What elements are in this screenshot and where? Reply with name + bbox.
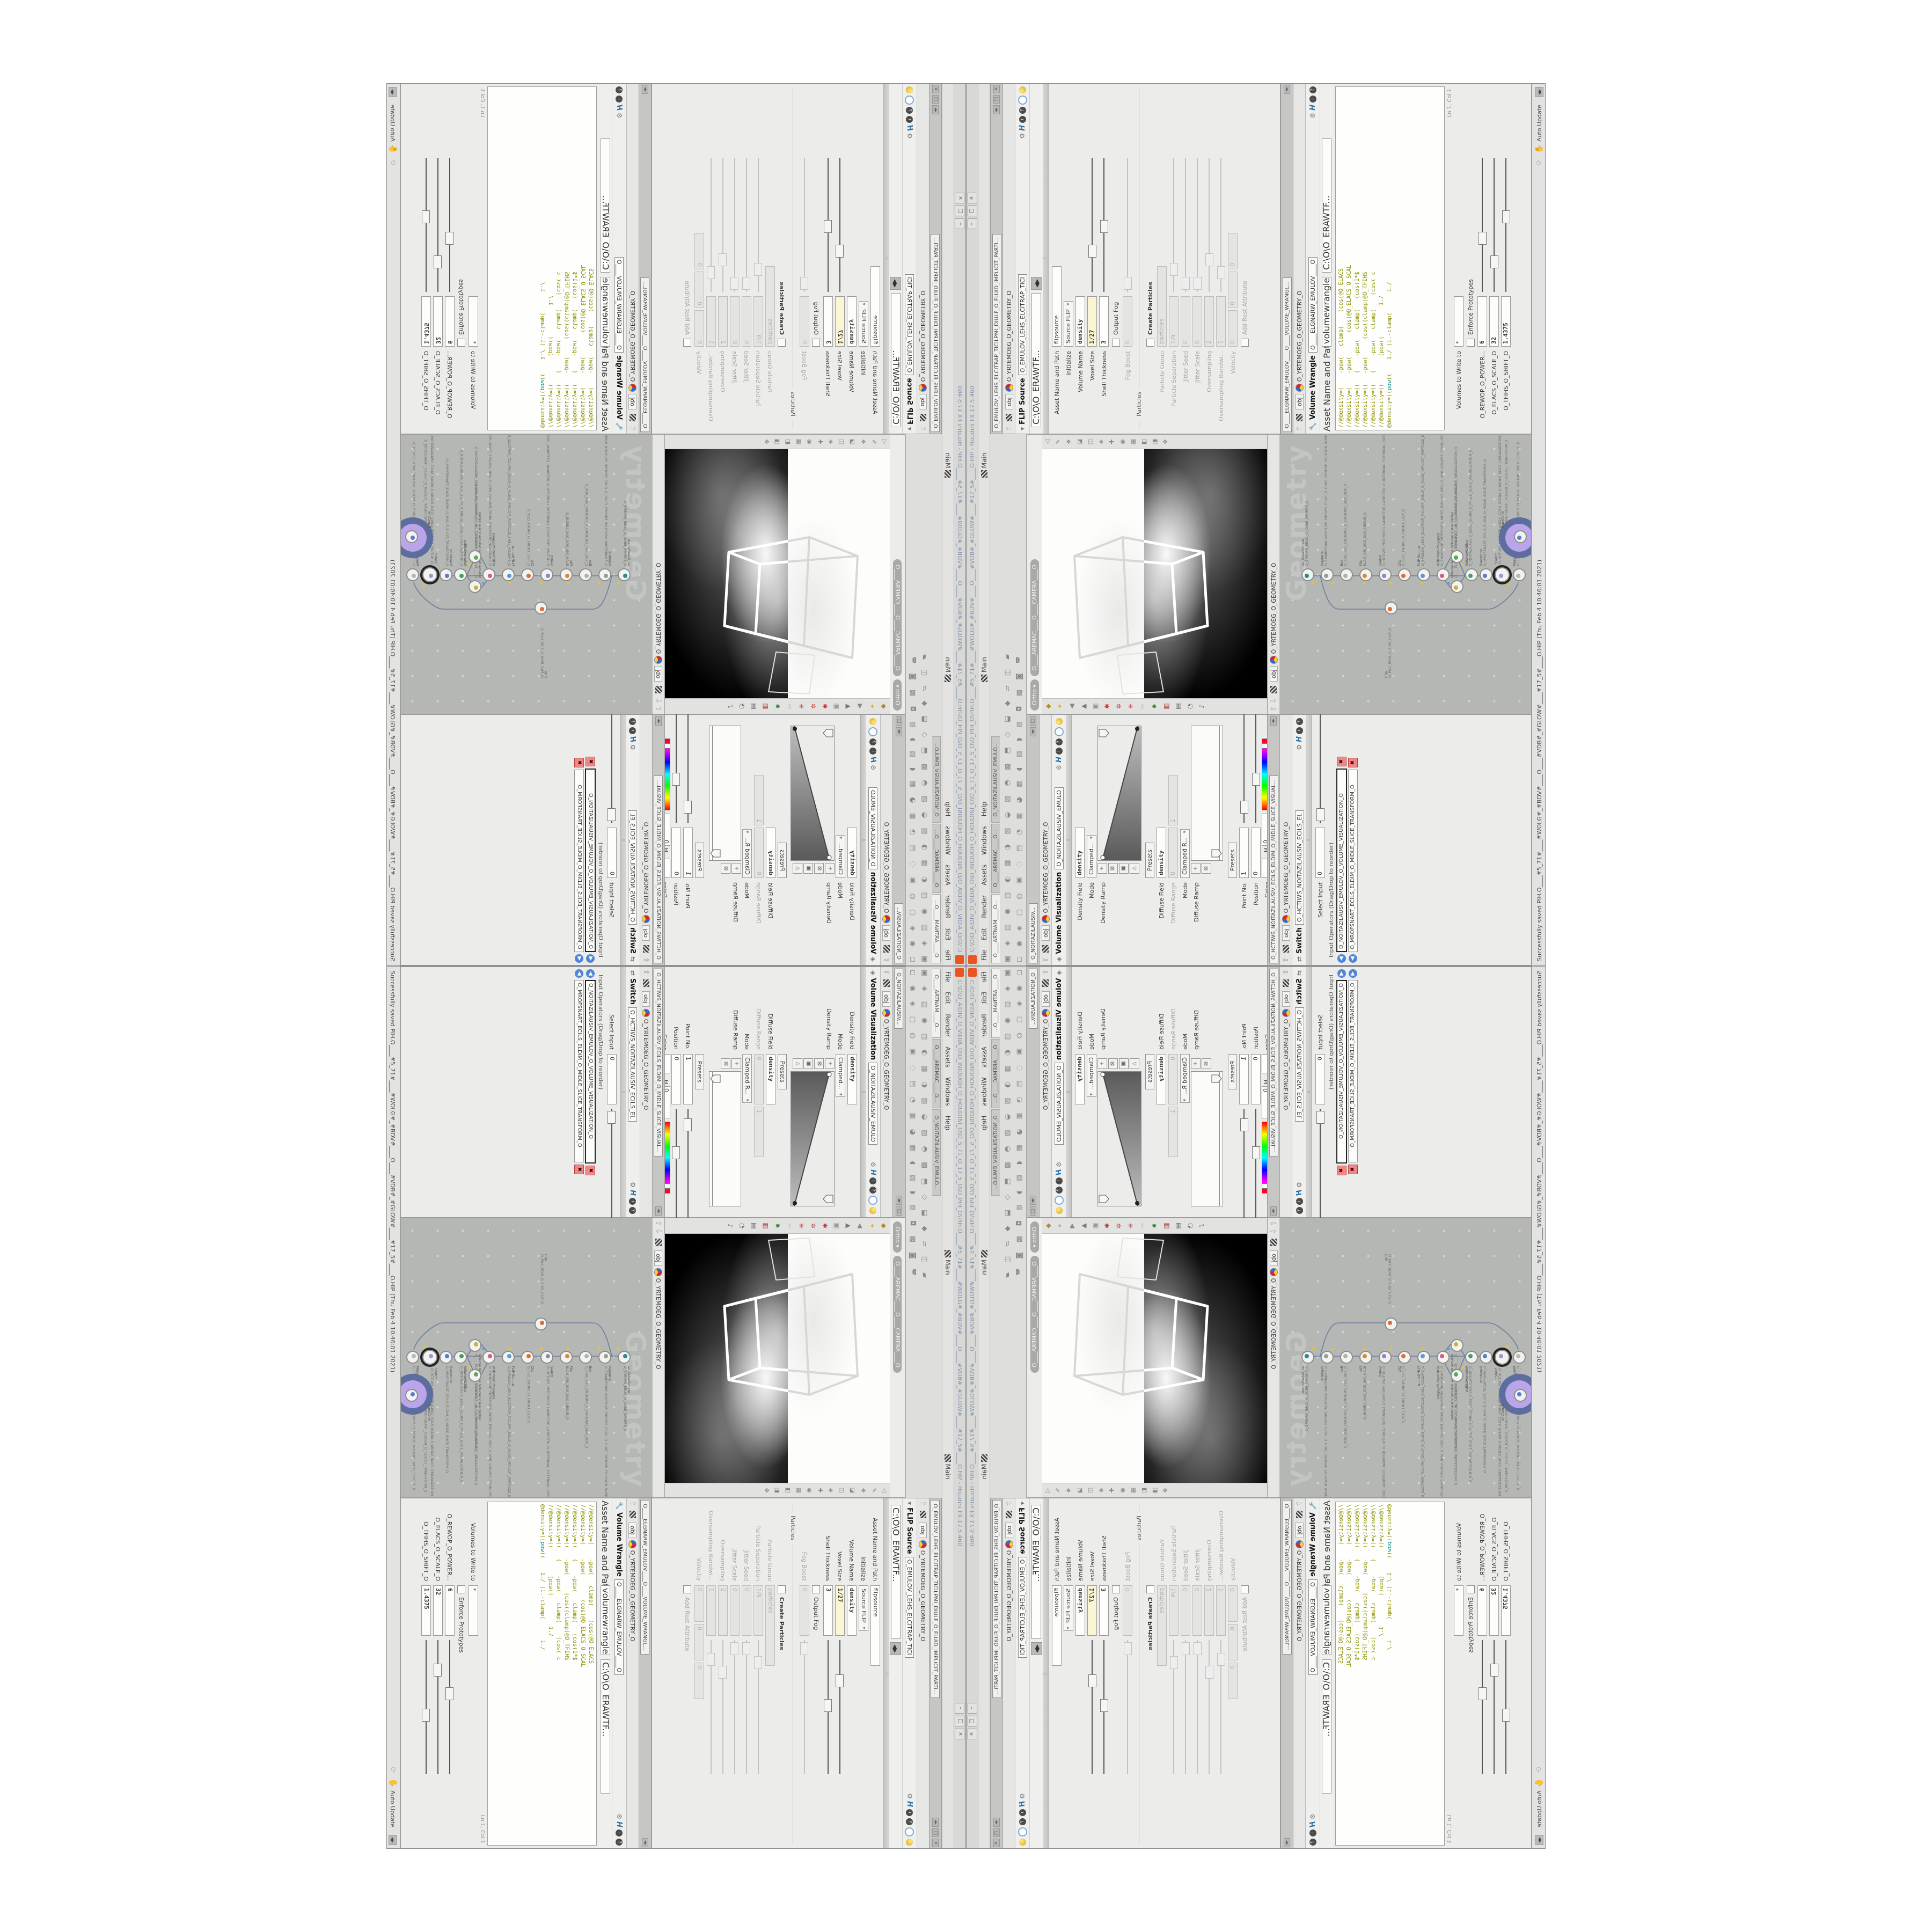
node-flip-source[interactable]: FLIP SourceO_EMULOV_LEHS_ELCITRAP_TICILP… [1417, 568, 1430, 581]
menu-help[interactable]: Help [945, 797, 952, 821]
ramp-del-icon[interactable]: ⊠ [814, 1058, 824, 1069]
gear-icon[interactable]: ⚙ [1296, 1182, 1303, 1188]
node-volume-visualization[interactable]: Volume VisualizationO_NOITAZILAUSIV_EMUL… [469, 550, 481, 563]
fog-boost-field[interactable]: 0 [800, 296, 809, 347]
jitter-scale-field[interactable]: 0 [1192, 1585, 1202, 1636]
shelf-tab-mantra[interactable]: O____ARTNAM____O... [991, 969, 1000, 1038]
nav-up-icon[interactable]: ⇧ [655, 706, 663, 712]
pane-max-icon[interactable]: □ [993, 95, 1000, 104]
asset-path-field[interactable]: C:\O\O_ERAWTF... [1322, 138, 1331, 273]
asset-path-field[interactable]: C:\O\O_ERAWTF... [1322, 1659, 1331, 1794]
power-slider[interactable] [1479, 1640, 1486, 1774]
pane-split-icon[interactable]: ◂▸ [642, 1838, 648, 1847]
update-mode-selector[interactable]: Auto Update [1536, 105, 1543, 142]
point-no-input[interactable]: 1 [1239, 1054, 1249, 1104]
gear-icon[interactable]: ⚙ [1309, 1813, 1316, 1819]
shell-thickness-slider[interactable] [824, 1640, 832, 1774]
path-arrows-icon[interactable]: ◂▸ [1031, 277, 1042, 290]
shelf-tools-row2[interactable]: ◻ ◉ ◈ ▢ ◍ ▣ ◌ ▤ ◔ ▥ ◕ ▦ ◖ ▧ ◗ ▨ ◘ ▩ ◙ ◚ [907, 970, 918, 1431]
scale-slider[interactable] [434, 158, 442, 292]
vex-code-editor[interactable]: //@density=( -pow( clamp( (cos(@O_ELACS_… [1335, 1502, 1445, 1846]
ramp-add-icon[interactable]: + [1097, 1058, 1107, 1069]
oversampling-bw-field[interactable]: 1 [1216, 1585, 1226, 1636]
fog-boost-slider[interactable] [1124, 1640, 1131, 1774]
density-presets-button[interactable]: Presets [778, 843, 787, 878]
viewport-right-toolbar[interactable]: ◁✎❖◪◫◈ ✚◉▦◧◨✥ [1042, 1483, 1267, 1497]
particle-separation-slider[interactable] [755, 158, 762, 292]
close-button[interactable]: × [955, 1729, 964, 1739]
pane-split-icon[interactable]: ◂▸ [1030, 1196, 1036, 1205]
remove-icon[interactable]: ✖ [574, 758, 584, 767]
particle-group-field[interactable]: particles [765, 1585, 775, 1666]
pane-tab[interactable]: O____ELGNARW_EMULOV____O____VOLUME_WRANG… [1283, 1500, 1292, 1655]
voxel-size-field[interactable]: 1/27 [1087, 296, 1097, 347]
flipsource-name-field[interactable]: flipsource [870, 266, 880, 347]
pane-tab[interactable]: O_EMULOV_LEHS_ELCITRAP_TICILPMI_DIULF_O_… [931, 234, 940, 432]
flipsource-name-field[interactable]: flipsource [1052, 1585, 1062, 1666]
question-icon[interactable]: ? [616, 1839, 623, 1846]
vex-code-editor[interactable]: //@density=( -pow( clamp( (cos(@O_ELACS_… [487, 86, 597, 430]
pane-tab[interactable]: O_HCTIWS_NOITAZILAUSIV_ECILS_ELDIM_O_MID… [654, 775, 663, 963]
param-scroll-strip[interactable]: ⠿ [883, 1498, 889, 1849]
shift-field[interactable]: 1.4375 [1501, 296, 1511, 347]
mode-dropdown[interactable]: Clamped... [836, 1054, 845, 1097]
ramp-add-icon[interactable]: + [825, 1058, 835, 1069]
pane-tab[interactable]: O____ELGNARW_EMULOV____O____VOLUME_WRANG… [641, 277, 650, 432]
input-op-0[interactable]: O_NOITAZILAUSIV_EMULOV_O_VOLUME_VISUALIZ… [585, 769, 596, 952]
context-tab[interactable]: obj [1005, 1523, 1013, 1538]
add-rest-attribute-checkbox[interactable] [684, 1585, 692, 1593]
shelf-tools-row2[interactable]: ◻ ◉ ◈ ▢ ◍ ▣ ◌ ▤ ◔ ▥ ◕ ▦ ◖ ▧ ◗ ▨ ◘ ▩ ◙ ◚ [907, 501, 918, 962]
velocity-x[interactable]: 0 [694, 1585, 704, 1622]
node-merge[interactable]: MergeO_EGREM_HTIW_EMULOV_EGREM_O_MERGE_V… [406, 1351, 419, 1364]
node-name-field[interactable]: O_EMULOV_LEHS_ELCITRAP_TICI [1018, 1557, 1027, 1658]
pane-max-icon[interactable]: □ [896, 716, 902, 726]
volume-name-field[interactable]: density [847, 1585, 857, 1636]
flag-icon[interactable] [870, 718, 877, 725]
pane-split-icon[interactable]: ◂▸ [896, 727, 902, 736]
path-geometry[interactable]: O_YRTEMOEG_O_GEOMETRY_O [1270, 1278, 1277, 1370]
viewport-right-toolbar[interactable]: ◁✎❖◪◫◈ ✚◉▦◧◨✥ [665, 1483, 890, 1497]
jitter-seed-field[interactable]: 0 [1181, 1585, 1190, 1636]
node-clip-front[interactable]: ClipO_PILC_TNORF_O_FRONT_CLIP_O [521, 1351, 534, 1364]
shell-thickness-slider[interactable] [1100, 1640, 1108, 1774]
menu-windows[interactable]: Windows [945, 1072, 952, 1111]
oversampling-field[interactable]: 2 [1204, 296, 1214, 347]
menu-file[interactable]: File [945, 967, 952, 987]
status-arrows-icon[interactable]: ◂▸ [1535, 1835, 1543, 1845]
pane-tab[interactable]: O____ELGNARW_EMULOV____O____VOLUME_WRANG… [641, 1500, 650, 1655]
path-geometry[interactable]: O_YRTEMOEG_O_GEOMETRY_O [1042, 822, 1049, 913]
menu-edit[interactable]: Edit [980, 987, 988, 1009]
node-vdb-from-polygons[interactable]: VDB from PolygonsO_SNOGYLOP_YRTEMOEG_MOR… [482, 1351, 495, 1364]
node-cubesphere[interactable]: ao_CubeSphereO_EREHPS_EBUC_O_CUBE_SPHERE… [618, 568, 631, 581]
volumes-to-write-field[interactable]: * [469, 1585, 478, 1636]
power-field[interactable]: 6 [445, 1585, 455, 1636]
path-geometry[interactable]: O_YRTEMOEG_O_GEOMETRY_O [630, 291, 636, 382]
gear-icon[interactable]: ⚙ [1055, 1161, 1063, 1167]
ramp-add-icon[interactable]: + [731, 863, 741, 874]
maximize-button[interactable]: □ [968, 1716, 977, 1726]
asset-path-field[interactable]: C:\O\O_ERAWTF... [601, 1659, 610, 1794]
status-arrows-icon[interactable]: ◂▸ [389, 87, 397, 97]
desktop-selector[interactable]: Main [945, 657, 952, 672]
mode-dropdown[interactable]: Clamped... [1087, 835, 1096, 878]
help-houdini-icon[interactable]: H [1296, 1190, 1304, 1196]
node-vdb-from-polygons[interactable]: VDB from PolygonsO_SNOGYLOP_YRTEMOEG_MOR… [482, 568, 495, 581]
particle-separation-field[interactable]: 1/9 [753, 1585, 763, 1636]
asset-path-field[interactable]: C:\O\O_ERAWTF... [891, 1505, 901, 1639]
path-geometry[interactable]: O_YRTEMOEG_O_GEOMETRY_O [1006, 291, 1013, 382]
target-icon[interactable] [1018, 1827, 1027, 1836]
shelf-tools-row1[interactable]: ▣ ◈ ▤ ◉ ▥ ◐ ▦ ◑ ▧ ◒ ▨ ◓ ▩ ⬒ ◇ ⬓ ◆ ▱ ◫ ▰ [1002, 970, 1013, 1431]
close-button[interactable]: × [968, 1729, 977, 1739]
node-file[interactable]: FileBLAH_OBJ_SOS_NAO_UBSUB_O [560, 568, 573, 581]
jitter-scale-slider[interactable] [731, 1640, 738, 1774]
jitter-scale-field[interactable]: 0 [730, 1585, 740, 1636]
ramp-tri-icon[interactable]: △ [793, 863, 802, 874]
path-arrows-icon[interactable]: ◂▸ [1031, 1642, 1042, 1655]
param-scroll-strip[interactable]: ⠿ [1066, 967, 1072, 1217]
node-file[interactable]: FileBLAH_OBJ_SOS_NAO_UBSUB_O [1359, 1351, 1372, 1364]
reorder-handle-icon[interactable]: ◀ [1337, 969, 1346, 978]
diffuse-mode-dropdown[interactable]: Clamped R... [1180, 829, 1190, 878]
voxel-size-field[interactable]: 1/27 [1087, 1585, 1097, 1636]
flag-icon[interactable] [1019, 86, 1026, 93]
viewport-right-toolbar[interactable]: ◁✎❖◪◫◈ ✚◉▦◧◨✥ [665, 435, 890, 449]
node-merge[interactable]: MergeO_EGREM_HTIW_EMULOV_EGREM_O_MERGE_V… [1513, 568, 1526, 581]
nav-up-icon[interactable]: ⇧ [1296, 426, 1304, 431]
oversampling-bw-field[interactable]: 1 [706, 296, 716, 347]
pane-max-icon[interactable]: □ [1030, 716, 1036, 726]
ramp-add-icon[interactable]: + [825, 863, 835, 874]
node-file[interactable]: FileBLAH_OBJ_SOS_NAO_UBSUB_O [1359, 568, 1372, 581]
projection-toggle[interactable]: Ortho ▾ [1030, 679, 1039, 711]
diffuse-presets-button[interactable]: Presets [1228, 843, 1237, 878]
enforce-prototypes-checkbox[interactable] [1467, 339, 1475, 347]
add-rest-attribute-checkbox[interactable] [1241, 1585, 1249, 1593]
nav-up-icon[interactable]: ⇧ [1282, 969, 1290, 975]
node-name-field[interactable]: O_EMULOV_LEHS_ELCITRAP_TICI [1018, 274, 1027, 375]
info-icon[interactable]: i [616, 96, 623, 103]
scale-slider[interactable] [1490, 1640, 1498, 1774]
enforce-prototypes-checkbox[interactable] [458, 339, 466, 347]
desktop-selector[interactable]: Main [980, 657, 988, 672]
camera-selector[interactable]: O____AREMAC____O____CAMERA____O [1030, 1256, 1039, 1373]
particle-separation-slider[interactable] [1170, 158, 1177, 292]
wrangle-name-field[interactable]: volumewrangle [601, 277, 610, 347]
node-polywire[interactable]: PolyWireO_EMARFERIW_NOGYLOP_EREHPS_EBUC_… [1321, 568, 1334, 581]
nav-up-icon[interactable]: ⇧ [1042, 969, 1050, 975]
help-houdini-icon[interactable]: H [1019, 125, 1027, 131]
path-geometry[interactable]: O_YRTEMOEG_O_GEOMETRY_O [1283, 822, 1290, 913]
mode-dropdown[interactable]: Clamped... [1087, 1054, 1096, 1097]
info-icon[interactable]: i [1056, 1177, 1063, 1184]
pane-max-icon[interactable]: □ [1030, 1206, 1036, 1216]
scale-slider[interactable] [1490, 158, 1498, 292]
help-houdini-icon[interactable]: H [1309, 105, 1317, 111]
input-op-1[interactable]: O_MROFSNART_ECILS_ELDIM_O_MIDLE_SLICE_TR… [1348, 980, 1358, 1162]
question-icon[interactable]: ? [1309, 86, 1316, 93]
ramp-opt-icon[interactable]: ▣ [1119, 1058, 1129, 1069]
info-icon[interactable]: i [616, 1829, 623, 1836]
maximize-button[interactable]: □ [955, 206, 964, 216]
jitter-seed-field[interactable]: 0 [742, 296, 751, 347]
jitter-scale-field[interactable]: 0 [1192, 296, 1202, 347]
nav-up-icon[interactable]: ⇧ [642, 957, 650, 963]
shelf-tab-mantra[interactable]: O____ARTNAM____O... [932, 969, 941, 1038]
scale-field[interactable]: 32 [433, 296, 443, 347]
context-tab[interactable]: obj [1296, 1523, 1304, 1538]
pane-split-icon[interactable]: ◂▸ [1284, 85, 1290, 94]
menu-assets[interactable]: Assets [945, 1042, 952, 1072]
asset-path-field[interactable]: C:\O\O_ERAWTF... [1031, 293, 1041, 427]
param-scroll-strip[interactable]: ⠿ [883, 83, 889, 434]
help-houdini-icon[interactable]: H [616, 105, 624, 111]
shelf-tab-visualization[interactable]: O_NOITAZILAUSIV_EMULO... [991, 1109, 1000, 1196]
question-icon[interactable]: ? [616, 86, 623, 93]
jitter-scale-slider[interactable] [1194, 158, 1201, 292]
help-houdini-icon[interactable]: H [869, 1169, 877, 1175]
shelf-tools-row1[interactable]: ▣ ◈ ▤ ◉ ▥ ◐ ▦ ◑ ▧ ◒ ▨ ◓ ▩ ⬒ ◇ ⬓ ◆ ▱ ◫ ▰ [1002, 501, 1013, 962]
context-tab[interactable]: obj [655, 1250, 663, 1266]
menu-assets[interactable]: Assets [980, 1042, 988, 1072]
input-op-0[interactable]: O_NOITAZILAUSIV_EMULOV_O_VOLUME_VISUALIZ… [585, 980, 596, 1163]
density-field-input[interactable]: density [1075, 828, 1085, 878]
projection-toggle[interactable]: Ortho ▾ [893, 679, 902, 711]
context-tab[interactable]: obj [629, 394, 637, 409]
context-tab[interactable]: obj [642, 925, 650, 941]
oversampling-bw-field[interactable]: 1 [1216, 296, 1226, 347]
gear-icon[interactable]: ⚙ [1019, 133, 1026, 139]
node-name-field[interactable]: O_EMULOV_LEHS_ELCITRAP_TICI [905, 1557, 914, 1658]
vex-code-editor[interactable]: //@density=( -pow( clamp( (cos(@O_ELACS_… [1335, 86, 1445, 430]
power-slider[interactable] [1479, 158, 1486, 292]
param-scroll-strip[interactable]: ⠿ [1043, 1498, 1049, 1849]
pane-tab[interactable]: O_NOITAZILAUSIV... [1029, 969, 1038, 1029]
context-tab[interactable]: obj [1042, 991, 1050, 1007]
hand-icon[interactable]: ✋ [1535, 144, 1543, 153]
viewport-render[interactable] [1042, 449, 1267, 698]
fog-boost-field[interactable]: 0 [800, 1585, 809, 1636]
node-volume-wrangle[interactable]: Volume WrangleO____ELGNARW_EMULOV____O__… [469, 1339, 481, 1352]
refresh-icon[interactable]: ⟳ [1535, 1767, 1543, 1773]
create-particles-checkbox[interactable] [778, 1585, 786, 1593]
menu-windows[interactable]: Windows [980, 1072, 988, 1111]
node-volume-viz-slice[interactable]: VolumeVizSliceO_NOITAZILAUSIV_ECILS_ELDI… [1465, 568, 1478, 581]
shelf-tab-camera[interactable]: O____AREMAC____O... [991, 1039, 1000, 1108]
question-icon[interactable]: ? [870, 738, 877, 745]
reorder-handle-icon[interactable]: ◀ [1349, 954, 1357, 963]
ramp-add-icon[interactable]: + [1191, 863, 1201, 874]
particle-separation-slider[interactable] [755, 1640, 762, 1774]
ramp-del-icon[interactable]: ⊠ [1108, 863, 1118, 874]
question-icon[interactable]: ? [1056, 738, 1063, 745]
density-presets-button[interactable]: Presets [1145, 1054, 1154, 1089]
pane-split-icon[interactable]: ◂▸ [932, 1818, 939, 1827]
pane-split-icon[interactable]: ◂▸ [896, 1196, 902, 1205]
nav-up-icon[interactable]: ⇧ [1005, 1501, 1013, 1506]
pane-tab[interactable]: O_NOITAZILAUSIV... [895, 969, 904, 1029]
node-transform-result[interactable]: TransformO_MROFSNART_TLUSER_O_RESULT_TRA… [405, 530, 418, 543]
oversampling-bw-slider[interactable] [707, 1640, 715, 1774]
close-button[interactable]: × [968, 193, 977, 203]
diffuse-range-min[interactable]: 0 [1168, 828, 1178, 878]
shelf-tools-row1[interactable]: ▣ ◈ ▤ ◉ ▥ ◐ ▦ ◑ ▧ ◒ ▨ ◓ ▩ ⬒ ◇ ⬓ ◆ ▱ ◫ ▰ [919, 970, 930, 1431]
oversampling-field[interactable]: 2 [718, 1585, 728, 1636]
update-mode-selector[interactable]: Auto Update [1536, 1790, 1543, 1827]
node-volume-visualization[interactable]: Volume VisualizationO_NOITAZILAUSIV_EMUL… [1451, 1369, 1463, 1382]
shift-field[interactable]: 1.4375 [1501, 1585, 1511, 1636]
oversampling-field[interactable]: 2 [1204, 1585, 1214, 1636]
hand-icon[interactable]: ✋ [1535, 1779, 1543, 1788]
nav-up-icon[interactable]: ⇧ [655, 1220, 663, 1226]
density-ramp-widget[interactable] [791, 726, 835, 861]
shelf-tab-visualization[interactable]: O_NOITAZILAUSIV_EMULO... [991, 736, 1000, 823]
select-input-field[interactable]: 0 [1315, 828, 1325, 878]
initialize-dropdown[interactable]: Source FLIP [859, 1585, 868, 1631]
refresh-icon[interactable]: ⟳ [389, 159, 397, 165]
shift-field[interactable]: 1.4375 [421, 1585, 431, 1636]
gear-icon[interactable]: ⚙ [616, 1813, 623, 1819]
context-tab[interactable]: obj [1005, 394, 1013, 409]
wrangle-name-field[interactable]: volumewrangle [1322, 277, 1331, 347]
camera-selector[interactable]: O____AREMAC____O____CAMERA____O [893, 559, 902, 676]
pane-tab[interactable]: O_NOITAZILAUSIV... [1029, 904, 1038, 964]
path-arrows-icon[interactable]: ◂▸ [890, 1642, 902, 1655]
node-merge[interactable]: MergeO_EGREM_HTIW_EMULOV_EGREM_O_MERGE_V… [1513, 1351, 1526, 1364]
ramp-add-icon[interactable]: + [731, 1058, 741, 1069]
vex-code-editor[interactable]: //@density=( -pow( clamp( (cos(@O_ELACS_… [487, 1502, 597, 1846]
ramp-del-icon[interactable]: ⊠ [721, 1058, 730, 1069]
position-input[interactable]: 0 [671, 1054, 681, 1104]
node-clip-front[interactable]: ClipO_PILC_TNORF_O_FRONT_CLIP_O [1398, 568, 1411, 581]
viewport-left-toolbar[interactable]: ◆✦◀ ▲▣✱ ✲✳✂ ✸▥▤ ◔♪ [665, 698, 890, 714]
particle-group-field[interactable]: particles [765, 266, 775, 347]
target-icon[interactable] [869, 727, 878, 736]
network-canvas[interactable]: Geometry ao_CubeSphereO_EREHPS_EBUC_O_CU… [1280, 1218, 1531, 1497]
power-field[interactable]: 6 [1477, 296, 1487, 347]
pane-tab[interactable]: O_EMULOV_LEHS_ELCITRAP_TICILPMI_DIULF_O_… [992, 234, 1001, 432]
node-transform-result[interactable]: TransformO_MROFSNART_TLUSER_O_RESULT_TRA… [1514, 1389, 1527, 1402]
remove-icon[interactable]: ✖ [586, 757, 595, 766]
asset-path-field[interactable]: C:\O\O_ERAWTF... [891, 293, 901, 427]
voxel-size-field[interactable]: 1/27 [835, 296, 845, 347]
update-mode-selector[interactable]: Auto Update [390, 105, 397, 142]
node-name-field[interactable]: O____ELGNARW_EMULOV____O [615, 257, 624, 353]
shell-thickness-field[interactable]: 3 [1099, 1585, 1109, 1636]
viewport-left-toolbar[interactable]: ◆✦◀ ▲▣✱ ✲✳✂ ✸▥▤ ◔♪ [1042, 1218, 1267, 1234]
node-cubesphere[interactable]: ao_CubeSphereO_EREHPS_EBUC_O_CUBE_SPHERE… [1301, 1351, 1314, 1364]
context-tab[interactable]: obj [1270, 666, 1278, 682]
pane-split-icon[interactable]: ◂▸ [993, 1818, 1000, 1827]
node-flip-source[interactable]: FLIP SourceO_EMULOV_LEHS_ELCITRAP_TICILP… [502, 1351, 515, 1364]
diffuse-ramp-widget[interactable] [1191, 726, 1223, 861]
nav-up-icon[interactable]: ⇧ [1270, 706, 1278, 712]
remove-icon[interactable]: ✖ [1348, 758, 1358, 767]
pane-tab[interactable]: O_HCTIWS_NOITAZILAUSIV_ECILS_ELDIM_O_MID… [1269, 775, 1278, 963]
velocity-y[interactable]: 0 [694, 272, 704, 308]
particle-group-field[interactable]: particles [1157, 266, 1167, 347]
pane-split-icon[interactable]: ◂▸ [1030, 727, 1036, 736]
pane-split-icon[interactable]: ◂▸ [642, 85, 648, 94]
projection-toggle[interactable]: Ortho ▾ [893, 1221, 902, 1253]
param-scroll-strip[interactable]: ⠿ [1307, 967, 1312, 1217]
node-clip-front[interactable]: ClipO_PILC_TNORF_O_FRONT_CLIP_O [521, 568, 534, 581]
node-volume-viz-slice[interactable]: VolumeVizSliceO_NOITAZILAUSIV_ECILS_ELDI… [454, 1351, 467, 1364]
info-icon[interactable]: i [1309, 96, 1316, 103]
desktop-selector[interactable]: Main [945, 1260, 952, 1275]
node-clip-front[interactable]: ClipO_PILC_TNORF_O_FRONT_CLIP_O [1398, 1351, 1411, 1364]
node-name-field[interactable]: O____ELGNARW_EMULOV____O [615, 1579, 624, 1675]
gear-icon[interactable]: ⚙ [906, 133, 913, 139]
node-volume-wrangle[interactable]: Volume WrangleO____ELGNARW_EMULOV____O__… [1451, 1339, 1463, 1352]
pane-split-icon[interactable]: ◂▸ [1284, 1838, 1290, 1847]
node-clip-side[interactable]: ClipO_PILC_EDIS_O_SIDE_CLIP_O [535, 602, 547, 614]
context-tab[interactable]: obj [1282, 925, 1290, 941]
pane-tab[interactable]: O_HCTIWS_NOITAZILAUSIV_ECILS_ELDIM_O_MID… [654, 969, 663, 1157]
path-geometry[interactable]: O_YRTEMOEG_O_GEOMETRY_O [1042, 1019, 1049, 1110]
shelf-tools-row1[interactable]: ▣ ◈ ▤ ◉ ▥ ◐ ▦ ◑ ▧ ◒ ▨ ◓ ▩ ⬒ ◇ ⬓ ◆ ▱ ◫ ▰ [919, 501, 930, 962]
velocity-z[interactable]: 0 [1228, 1663, 1238, 1699]
path-arrows-icon[interactable]: ◂▸ [890, 277, 902, 290]
flag-icon[interactable] [906, 86, 913, 93]
menu-file[interactable]: File [980, 967, 988, 987]
node-box[interactable]: BoxO_XOB_BUS_DNUORG_O_GROUND_SUB_BOX_O [579, 1351, 592, 1364]
minimize-button[interactable]: – [955, 218, 964, 229]
path-geometry[interactable]: O_YRTEMOEG_O_GEOMETRY_O [1283, 1019, 1290, 1110]
target-icon[interactable] [1055, 1196, 1064, 1205]
initialize-dropdown[interactable]: Source FLIP [1064, 301, 1073, 347]
diffuse-field-input[interactable]: density [766, 828, 775, 878]
ramp-opt-icon[interactable]: ▣ [1119, 863, 1129, 874]
menu-render[interactable]: Render [945, 1009, 952, 1042]
particle-separation-slider[interactable] [1170, 1640, 1177, 1774]
fog-boost-slider[interactable] [801, 158, 808, 292]
flipsource-name-field[interactable]: flipsource [870, 1585, 880, 1666]
add-rest-attribute-checkbox[interactable] [684, 339, 692, 347]
info-icon[interactable]: i [1296, 1198, 1303, 1205]
take-selector[interactable]: Main [945, 453, 952, 469]
context-tab[interactable]: obj [1042, 925, 1050, 941]
input-op-0[interactable]: O_NOITAZILAUSIV_EMULOV_O_VOLUME_VISUALIZ… [1336, 769, 1347, 952]
ramp-add-icon[interactable]: + [1191, 1058, 1201, 1069]
node-name-field[interactable]: O_HCTIWS_NOITAZILAUSIV_ECILS_EL [628, 1007, 638, 1122]
wrangle-name-field[interactable]: volumewrangle [601, 1585, 610, 1655]
fog-boost-field[interactable]: 0 [1123, 296, 1132, 347]
jitter-scale-slider[interactable] [731, 158, 738, 292]
help-houdini-icon[interactable]: H [1019, 1801, 1027, 1807]
diffuse-field-input[interactable]: density [766, 1054, 775, 1104]
input-op-1[interactable]: O_MROFSNART_ECILS_ELDIM_O_MIDLE_SLICE_TR… [574, 770, 584, 952]
velocity-z[interactable]: 0 [694, 233, 704, 269]
node-clip-side[interactable]: ClipO_PILC_EDIS_O_SIDE_CLIP_O [1385, 1318, 1397, 1330]
gear-icon[interactable]: ⚙ [1309, 113, 1316, 119]
node-file[interactable]: FileBLAH_OBJ_SOS_NAO_UBSUB_O [560, 1351, 573, 1364]
nav-up-icon[interactable]: ⇧ [1282, 957, 1290, 963]
node-switch-selected[interactable]: SwitchO_HCTIWS_NOITAZILAUSIV_ECILS_ELDIM… [422, 1350, 437, 1365]
context-tab[interactable]: obj [1282, 991, 1290, 1007]
path-geometry[interactable]: O_YRTEMOEG_O_GEOMETRY_O [1296, 291, 1303, 382]
ramp-tri-icon[interactable]: △ [1130, 1058, 1139, 1069]
power-slider[interactable] [446, 158, 453, 292]
node-polywire[interactable]: PolyWireO_EMARFERIW_NOGYLOP_EREHPS_EBUC_… [598, 1351, 611, 1364]
ramp-tri-icon[interactable]: △ [793, 1058, 802, 1069]
viewport-left-toolbar[interactable]: ◆✦◀ ▲▣✱ ✲✳✂ ✸▥▤ ◔♪ [1042, 698, 1267, 714]
pane-max-icon[interactable]: □ [932, 95, 939, 104]
node-name-field[interactable]: O_NOITAZILAUSIV_EMULO [869, 1063, 878, 1145]
remove-icon[interactable]: ✖ [574, 1165, 584, 1174]
